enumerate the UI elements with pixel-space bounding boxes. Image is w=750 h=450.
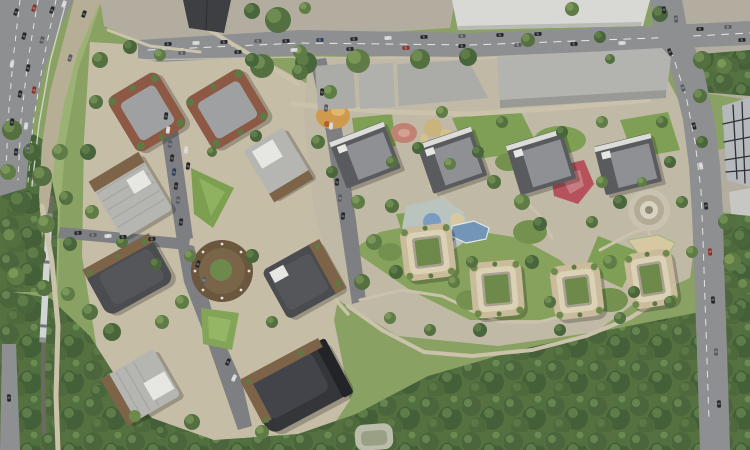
tree-icon bbox=[23, 143, 41, 161]
plaza-circle-1 bbox=[424, 119, 442, 137]
plaza-seat bbox=[202, 289, 205, 292]
tree-icon bbox=[613, 195, 627, 209]
tree-icon bbox=[728, 304, 744, 320]
car-icon bbox=[618, 41, 625, 45]
tree-icon bbox=[103, 323, 121, 341]
tree-icon bbox=[52, 144, 68, 160]
tree-icon bbox=[311, 135, 325, 149]
tree-icon bbox=[556, 126, 568, 138]
tree-icon bbox=[385, 199, 399, 213]
tree-icon bbox=[156, 426, 168, 438]
playground-pink-inner bbox=[398, 129, 410, 137]
tree-icon bbox=[245, 53, 259, 67]
tree-icon bbox=[436, 106, 448, 118]
car-icon bbox=[534, 32, 541, 36]
tree-icon bbox=[346, 49, 370, 73]
tree-icon bbox=[664, 156, 676, 168]
green-mound bbox=[378, 243, 402, 261]
tree-icon bbox=[693, 89, 707, 103]
gray-box-1 bbox=[315, 63, 356, 110]
tree-icon bbox=[565, 2, 579, 16]
car-icon bbox=[14, 148, 19, 156]
tree-icon bbox=[473, 323, 487, 337]
tree-icon bbox=[265, 7, 291, 33]
tree-icon bbox=[676, 196, 688, 208]
car-icon bbox=[402, 46, 409, 50]
car-icon bbox=[290, 48, 297, 52]
tree-icon bbox=[586, 216, 598, 228]
car-icon bbox=[384, 36, 391, 40]
car-icon bbox=[714, 348, 718, 355]
tree-icon bbox=[459, 48, 477, 66]
car-icon bbox=[164, 42, 171, 46]
tree-icon bbox=[718, 214, 734, 230]
plaza-seat bbox=[240, 251, 243, 254]
tree-icon bbox=[514, 194, 530, 210]
tree-icon bbox=[533, 217, 547, 231]
car-icon bbox=[662, 6, 666, 13]
tree-icon bbox=[596, 116, 608, 128]
tree-icon bbox=[0, 164, 16, 180]
car-icon bbox=[738, 38, 745, 42]
plaza-seat bbox=[240, 289, 243, 292]
tree-icon bbox=[293, 45, 307, 59]
tree-icon bbox=[32, 166, 52, 186]
car-icon bbox=[458, 34, 465, 38]
car-icon bbox=[329, 122, 333, 130]
tree-icon bbox=[2, 228, 22, 248]
tree-icon bbox=[16, 294, 36, 314]
car-icon bbox=[74, 231, 81, 235]
car-icon bbox=[724, 25, 731, 29]
car-icon bbox=[346, 47, 353, 51]
tree-icon bbox=[521, 33, 535, 47]
tree-icon bbox=[664, 296, 676, 308]
tree-icon bbox=[59, 191, 73, 205]
tree-icon bbox=[80, 144, 96, 160]
tree-icon bbox=[9, 191, 31, 213]
car-icon bbox=[674, 15, 678, 22]
tree-icon bbox=[154, 49, 166, 61]
tree-icon bbox=[36, 280, 52, 296]
tree-icon bbox=[85, 205, 99, 219]
tree-icon bbox=[184, 414, 200, 430]
car-icon bbox=[696, 27, 703, 31]
tree-icon bbox=[412, 142, 424, 154]
round-plaza-green bbox=[210, 259, 232, 281]
tree-icon bbox=[354, 274, 370, 290]
tree-icon bbox=[323, 85, 337, 99]
tree-icon bbox=[155, 315, 169, 329]
tree-icon bbox=[466, 256, 478, 268]
tree-icon bbox=[7, 267, 25, 285]
car-icon bbox=[7, 394, 11, 401]
car-icon bbox=[320, 88, 324, 96]
plaza-seat bbox=[202, 251, 205, 254]
tree-icon bbox=[554, 324, 566, 336]
tree-icon bbox=[544, 296, 556, 308]
tree-icon bbox=[594, 31, 606, 43]
tree-icon bbox=[496, 116, 508, 128]
tree-icon bbox=[184, 250, 196, 262]
tree-icon bbox=[366, 234, 382, 250]
tree-icon bbox=[123, 40, 137, 54]
car-icon bbox=[350, 37, 357, 41]
car-icon bbox=[148, 237, 155, 241]
car-icon bbox=[282, 39, 289, 43]
spiral-plaza-4 bbox=[645, 206, 653, 214]
tree-icon bbox=[603, 255, 617, 269]
tree-icon bbox=[292, 64, 308, 80]
car-icon bbox=[420, 35, 427, 39]
tree-icon bbox=[628, 286, 640, 298]
light-roof-east bbox=[729, 188, 750, 216]
car-icon bbox=[338, 194, 342, 202]
site-plan-canvas bbox=[0, 0, 750, 450]
tree-icon bbox=[244, 3, 260, 19]
tree-icon bbox=[637, 177, 647, 187]
plaza-seat bbox=[248, 270, 251, 273]
tree-icon bbox=[696, 136, 708, 148]
car-icon bbox=[178, 51, 185, 55]
tree-icon bbox=[716, 58, 732, 74]
tree-icon bbox=[91, 385, 105, 399]
tree-icon bbox=[444, 158, 456, 170]
car-icon bbox=[496, 33, 503, 37]
tree-icon bbox=[389, 265, 403, 279]
tree-icon bbox=[386, 156, 398, 168]
tree-icon bbox=[525, 255, 539, 269]
tree-icon bbox=[207, 147, 217, 157]
tree-icon bbox=[614, 312, 626, 324]
car-icon bbox=[26, 144, 31, 152]
green-roof-tower-2 bbox=[469, 259, 529, 324]
tree-icon bbox=[605, 54, 615, 64]
car-icon bbox=[254, 39, 261, 43]
car-icon bbox=[89, 233, 96, 237]
tree-icon bbox=[175, 295, 189, 309]
green-roof-tower-3 bbox=[549, 261, 609, 325]
tree-icon bbox=[351, 195, 365, 209]
car-icon bbox=[104, 234, 111, 238]
car-icon bbox=[514, 43, 521, 47]
tree-icon bbox=[82, 304, 98, 320]
tree-icon bbox=[487, 175, 501, 189]
car-icon bbox=[341, 212, 345, 220]
car-icon bbox=[220, 40, 227, 44]
car-icon bbox=[234, 50, 241, 54]
car-icon bbox=[458, 44, 465, 48]
tree-icon bbox=[596, 176, 608, 188]
tree-icon bbox=[384, 312, 396, 324]
car-icon bbox=[711, 296, 715, 303]
tree-icon bbox=[448, 276, 460, 288]
render-root bbox=[0, 0, 750, 450]
tree-icon bbox=[255, 425, 269, 439]
tree-icon bbox=[472, 146, 484, 158]
tree-icon bbox=[26, 246, 46, 266]
tree-icon bbox=[723, 253, 741, 271]
plaza-seat bbox=[221, 297, 224, 300]
garden-pavilion bbox=[354, 423, 394, 450]
car-icon bbox=[119, 235, 126, 239]
car-icon bbox=[324, 104, 328, 112]
tree-icon bbox=[686, 246, 698, 258]
tree-icon bbox=[326, 166, 338, 178]
plaza-seat bbox=[194, 270, 197, 273]
tree-icon bbox=[410, 49, 430, 69]
tree-icon bbox=[37, 215, 55, 233]
tree-icon bbox=[63, 237, 77, 251]
car-icon bbox=[570, 42, 577, 46]
car-icon bbox=[316, 38, 323, 42]
car-icon bbox=[708, 248, 712, 256]
tree-icon bbox=[424, 324, 436, 336]
tree-icon bbox=[61, 287, 75, 301]
green-roof-tower-1 bbox=[399, 222, 461, 286]
tree-icon bbox=[250, 130, 262, 142]
tree-icon bbox=[92, 52, 108, 68]
tree-icon bbox=[693, 51, 711, 69]
tree-icon bbox=[89, 95, 103, 109]
car-icon bbox=[335, 178, 339, 186]
plaza-circle-3 bbox=[420, 134, 428, 142]
tree-icon bbox=[266, 316, 278, 328]
plaza-seat bbox=[221, 243, 224, 246]
aerial-masterplan-render bbox=[0, 0, 750, 450]
tree-icon bbox=[150, 258, 162, 270]
car-icon bbox=[192, 41, 199, 45]
tree-icon bbox=[656, 116, 668, 128]
tree-icon bbox=[245, 249, 259, 263]
car-icon bbox=[717, 400, 721, 407]
tree-icon bbox=[299, 2, 311, 14]
